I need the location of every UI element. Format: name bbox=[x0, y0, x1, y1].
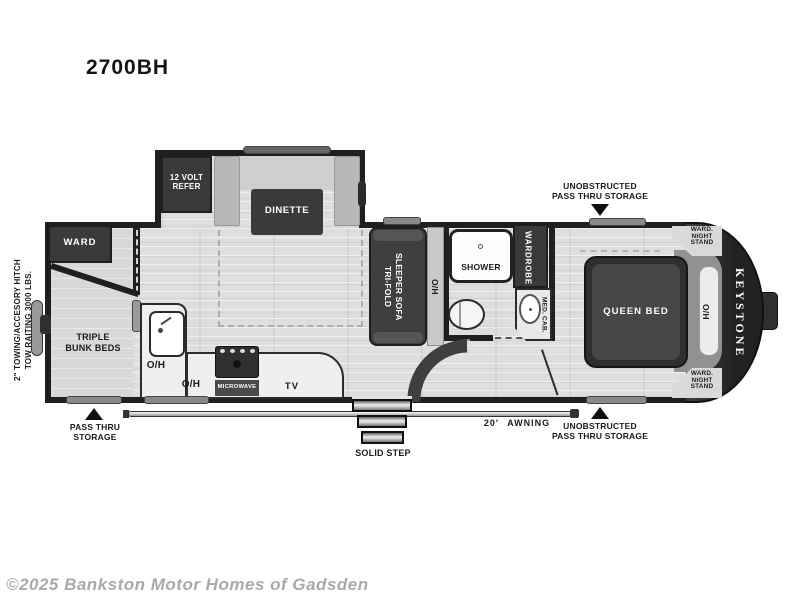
pass-thru-door-bottom bbox=[586, 396, 647, 404]
entry-step-2 bbox=[357, 415, 407, 428]
pass-thru-storage-label: PASS THRU STORAGE bbox=[53, 422, 137, 442]
arrow-up-right-icon bbox=[591, 407, 609, 419]
baggage-door-1 bbox=[66, 396, 122, 404]
slideout-handle bbox=[358, 181, 366, 207]
floorplan-page: 2700BH 2" TOWING/ACCESORY HITCH TOW RAIT… bbox=[0, 0, 800, 600]
solid-step-label: SOLID STEP bbox=[342, 448, 424, 459]
oh-label-kitchen-2: O/H bbox=[176, 379, 206, 391]
brand-logo: KEYSTONE bbox=[733, 245, 747, 381]
stove-knob-icon bbox=[233, 360, 241, 368]
wardrobe-label: WARDROBE bbox=[523, 231, 532, 283]
dinette-label: DINETTE bbox=[251, 205, 323, 216]
baggage-door-2 bbox=[144, 396, 209, 404]
ward-label: WARD bbox=[48, 237, 112, 248]
shower-drain-icon bbox=[478, 244, 483, 249]
refrigerator-label: 12 VOLT REFER bbox=[161, 173, 212, 192]
copyright-watermark: ©2025 Bankston Motor Homes of Gadsden bbox=[6, 575, 426, 595]
bunk-beds-label: TRIPLE BUNK BEDS bbox=[50, 332, 136, 353]
entry-step-1 bbox=[352, 399, 412, 412]
toilet-seat-line bbox=[459, 302, 461, 327]
awning-rail-cap-right bbox=[570, 409, 579, 418]
arrow-down-icon bbox=[591, 204, 609, 216]
dinette-backrest bbox=[240, 156, 334, 190]
bunk-pocket-door-line bbox=[136, 230, 138, 292]
bedroom-dashed-line bbox=[580, 250, 660, 252]
model-title: 2700BH bbox=[86, 56, 169, 81]
awning-label: 20' AWNING bbox=[462, 418, 572, 429]
med-cab-label: MED. CAB. bbox=[540, 291, 548, 339]
burner-icon-2 bbox=[230, 349, 235, 353]
burner-icon-4 bbox=[250, 349, 255, 353]
faucet-icon bbox=[158, 328, 163, 333]
kitchen-counter-run bbox=[186, 352, 344, 399]
sofa-label: TRI-FOLD SLEEPER SOFA bbox=[382, 238, 404, 336]
oh-label-sofa: O/H bbox=[430, 266, 440, 308]
slide-travel-outline bbox=[218, 230, 363, 327]
pass-thru-door-top bbox=[589, 218, 646, 226]
slideout-grab-rail bbox=[243, 146, 331, 154]
oh-label-kitchen-1: O/H bbox=[141, 360, 171, 372]
queen-bed-label: QUEEN BED bbox=[592, 306, 680, 317]
dinette-bench-right bbox=[334, 156, 360, 226]
awning-rail bbox=[128, 411, 572, 417]
roof-vent-bar bbox=[383, 217, 421, 225]
entry-door-swing bbox=[398, 333, 488, 403]
shower-label: SHOWER bbox=[449, 262, 513, 272]
toilet bbox=[448, 299, 485, 330]
unobstructed-pass-thru-top-label: UNOBSTRUCTED PASS THRU STORAGE bbox=[533, 181, 667, 201]
ward-night-stand-bottom-label: WARD. NIGHT STAND bbox=[680, 371, 724, 391]
awning-rail-cap-left bbox=[123, 410, 129, 418]
arrow-up-left-icon bbox=[85, 408, 103, 420]
shower bbox=[449, 229, 513, 283]
bedroom-oh-label: O/H bbox=[701, 292, 711, 332]
vanity-sink-drain-icon bbox=[529, 308, 532, 311]
ward-night-stand-top-label: WARD. NIGHT STAND bbox=[680, 227, 724, 247]
burner-icon-1 bbox=[220, 349, 225, 353]
rear-bumper-mount bbox=[40, 315, 51, 334]
microwave-label: MICROWAVE bbox=[215, 384, 259, 391]
entry-step-3 bbox=[361, 431, 404, 444]
tv-label: TV bbox=[272, 381, 312, 392]
dinette-bench-left bbox=[214, 156, 240, 226]
burner-icon-3 bbox=[240, 349, 245, 353]
